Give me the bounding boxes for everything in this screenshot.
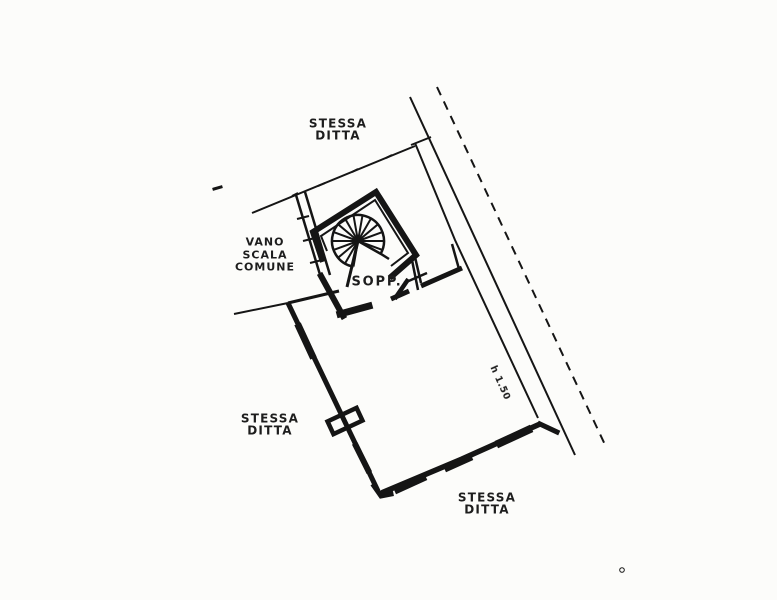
stair-enclosure-wall: [313, 192, 421, 316]
road-edge-line: [410, 97, 575, 455]
upper-unit-top-wall: [252, 137, 431, 213]
floor-plan-drawing: [0, 0, 777, 600]
label-line: COMUNE: [235, 261, 295, 274]
label-line: DITTA: [309, 130, 367, 142]
label-neighbor-top: STESSA DITTA: [309, 119, 367, 142]
label-line: VANO: [235, 236, 295, 249]
road-edge-dashed-line: [437, 87, 607, 449]
label-line: DITTA: [458, 504, 516, 516]
label-line: DITTA: [241, 425, 299, 437]
label-neighbor-bottom: STESSA DITTA: [458, 493, 516, 516]
label-common-stairwell: VANO SCALA COMUNE: [235, 236, 295, 274]
floor-plan-page: STESSA DITTA VANO SCALA COMUNE SOPP. STE…: [0, 0, 777, 600]
label-mezzanine: SOPP.: [351, 275, 402, 290]
label-neighbor-left: STESSA DITTA: [241, 414, 299, 437]
main-room-outline: [288, 268, 557, 496]
